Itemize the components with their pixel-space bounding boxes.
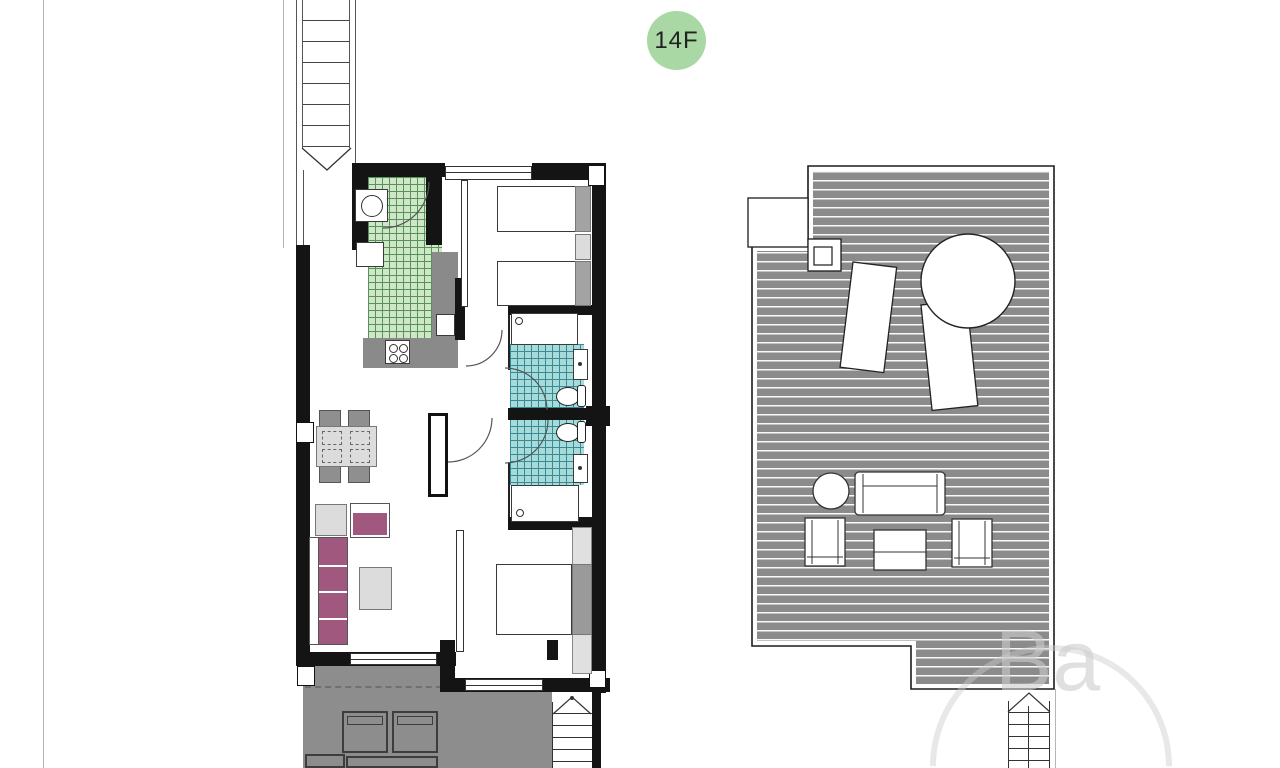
burner [399,354,408,363]
wall-stairs-right [592,690,601,768]
wall-kitchen-right [426,177,442,245]
table-dash-detail [322,431,342,445]
bathtub-faucet [515,317,523,325]
wall-top-left [352,163,445,177]
entry-corridor-wall [296,170,304,246]
apartment-terrace-right [455,692,552,768]
stove [385,340,410,364]
pillar-left-wall [296,422,314,443]
terrace-armchair-back [347,716,383,725]
bed-double [496,564,572,635]
stairs-node-dot [570,696,574,700]
kitchen-hall-door-arc [466,330,502,366]
sofa-cushion-line [319,591,347,593]
window-bedroom1-top [445,166,532,180]
terrace-armchair [392,711,438,753]
bathroom2-sink [573,454,588,483]
coffee-table [359,567,392,610]
burner [389,344,398,353]
central-duct [428,413,448,497]
unit-badge-label: 14F [654,27,698,55]
wall-between-bathrooms [508,408,596,420]
floor-plan-canvas: Ba 14F [0,0,1280,768]
apartment-stairs [552,702,592,768]
window-frame-line [446,172,531,173]
watermark-logo-text: Ba [995,618,1100,704]
partition-hall-lower [508,462,510,517]
terrace-armchair-back [397,716,433,725]
partition-bedroom1 [461,180,468,307]
wall-stub-bedroom2 [547,640,558,660]
living-hall-door-arc [448,418,492,462]
armchair [350,503,390,538]
kitchen-sink [436,314,455,336]
kitchen-appliance [356,242,384,267]
terrace-dashed-line [305,686,452,688]
toilet2-tank [577,421,586,443]
terrace-notch [748,198,808,247]
left-boundary-line [43,0,44,768]
table-dash-detail [350,449,370,463]
pillar-top-right [588,165,605,186]
washing-machine-drum [361,195,383,217]
nightstand [575,234,591,260]
sofa-cushion-line [319,618,347,620]
burner [389,354,398,363]
window-frame-line [466,685,542,686]
unit-badge: 14F [647,11,706,70]
window-living-bottom [350,653,437,665]
bed1-headboard [575,186,591,232]
bathtub [511,313,578,345]
shower-drain [516,509,524,517]
armchair-cushion [353,513,387,535]
entry-staircase [296,0,356,170]
bed-double-headboard [572,564,592,635]
toilet1-tank [577,385,586,407]
shower-tray [511,485,579,522]
washing-machine [355,189,388,222]
bathroom1-sink [573,349,588,380]
partition-hall-upper [508,315,510,370]
table-dash-detail [350,431,370,445]
window-bedroom2-bottom [465,679,543,691]
sofa [318,537,348,645]
partition-bedroom2 [456,530,464,652]
stair-boundary-line [283,0,284,248]
wall-top-right [532,163,592,180]
terrace-table [346,756,438,768]
bed-single-2 [497,261,576,306]
wall-pillar-bathroom [586,406,610,426]
entry-staircase-treads [302,0,350,148]
sofa-cushion-line [319,565,347,567]
dining-table [316,426,377,467]
side-table [315,504,347,536]
wall-left-outer [296,245,310,666]
pillar-terrace-left [297,666,315,686]
bed-single-1 [497,186,576,232]
window-frame-line [351,659,436,660]
terrace-planter [305,754,345,768]
table-dash-detail [322,449,342,463]
terrace-armchair [342,711,388,753]
wall-right-outer [592,163,606,693]
burner [399,344,408,353]
kitchen-counter-bottom [363,338,458,368]
bed2-headboard [575,261,591,306]
